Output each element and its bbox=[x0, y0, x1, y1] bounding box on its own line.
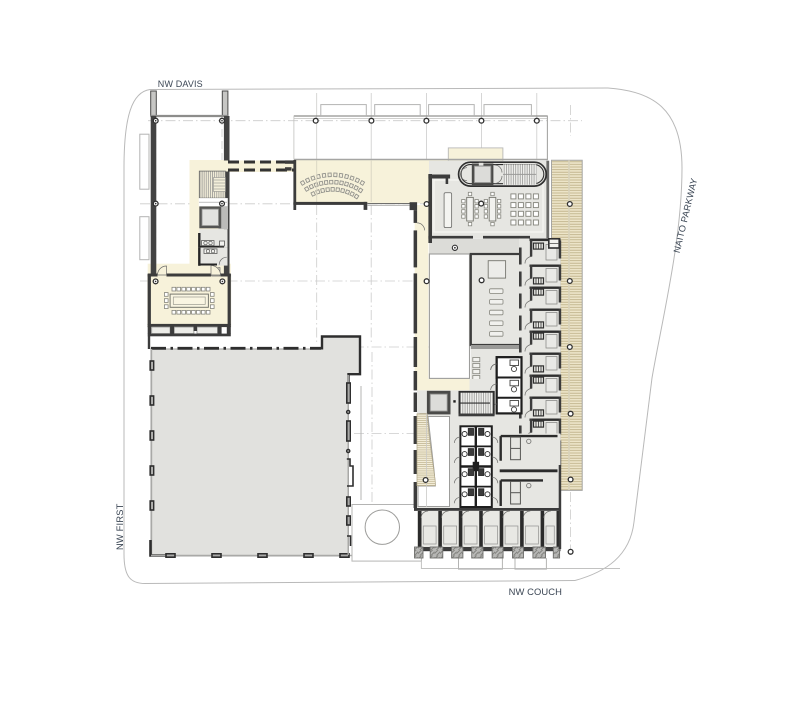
svg-text:NW COUCH: NW COUCH bbox=[509, 586, 562, 597]
svg-text:NW DAVIS: NW DAVIS bbox=[158, 79, 203, 89]
svg-text:NW FIRST: NW FIRST bbox=[115, 503, 125, 550]
